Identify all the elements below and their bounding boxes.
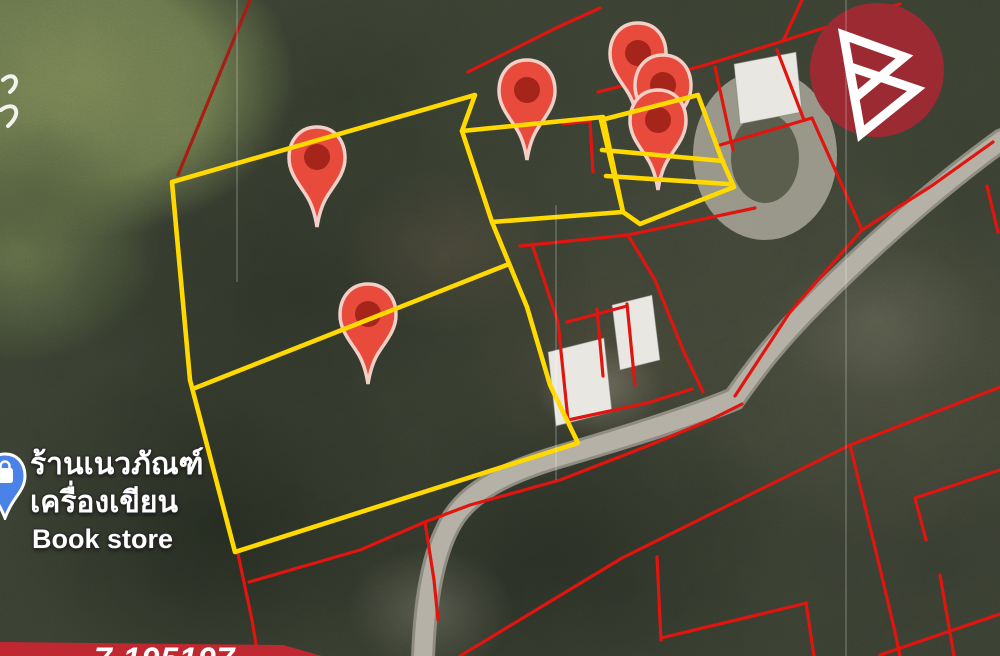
poi-name-line2: เครื่องเขียน — [30, 484, 240, 522]
map-overlay-layer — [0, 0, 1000, 656]
satellite-map-view[interactable]: ร้านเนวภัณฑ์ เครื่องเขียน Book store 7.1… — [0, 0, 1000, 656]
poi-name-line1: ร้านเนวภัณฑ์ — [30, 446, 240, 484]
driveway-island — [731, 113, 799, 203]
store-pin-icon[interactable] — [0, 452, 28, 520]
bookstore-poi-label[interactable]: ร้านเนวภัณฑ์ เครื่องเขียน Book store — [0, 446, 240, 556]
building-roof — [612, 295, 660, 370]
brand-logo — [810, 3, 944, 137]
poi-name-line3: Book store — [32, 522, 240, 556]
